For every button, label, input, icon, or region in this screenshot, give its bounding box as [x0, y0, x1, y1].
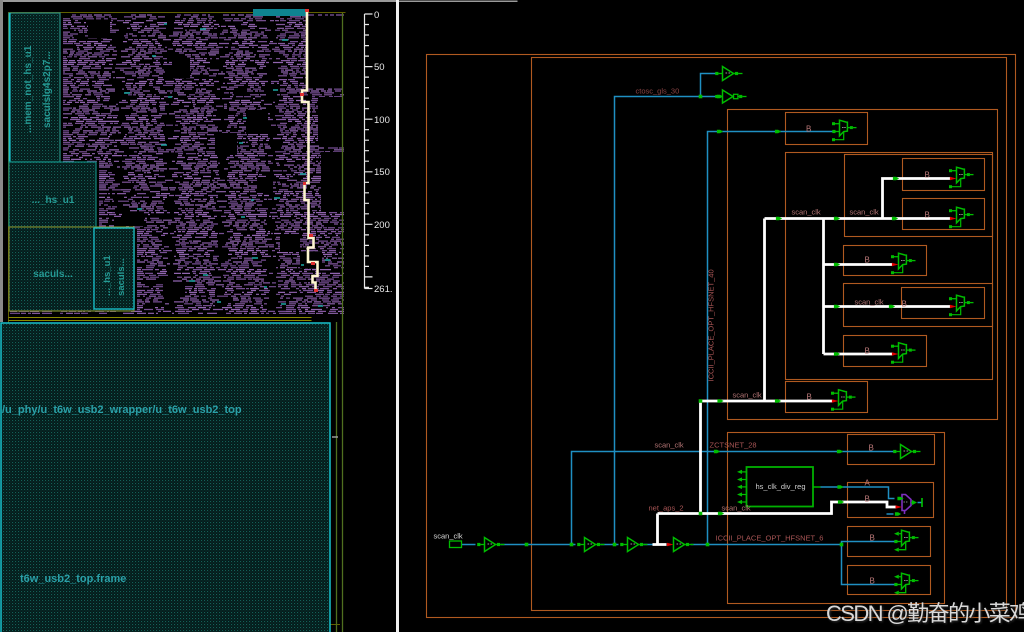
svg-text:..._hs_u1: ..._hs_u1 [32, 195, 75, 206]
svg-text:ICCII_PLACE_OPT_HFSNET_40: ICCII_PLACE_OPT_HFSNET_40 [707, 269, 716, 381]
svg-text:B: B [870, 534, 875, 543]
svg-text:hs_clk_div_reg: hs_clk_div_reg [756, 482, 806, 491]
svg-text:B: B [869, 444, 874, 453]
svg-text:261.: 261. [374, 284, 393, 295]
svg-text:B: B [807, 393, 812, 402]
svg-text:150: 150 [374, 167, 390, 178]
svg-text:scan_clk: scan_clk [850, 208, 879, 217]
svg-text:ICCII_PLACE_OPT_HFSNET_6: ICCII_PLACE_OPT_HFSNET_6 [716, 534, 824, 543]
svg-text:t6w_usb2_top.frame: t6w_usb2_top.frame [20, 573, 126, 585]
svg-text:B: B [865, 347, 870, 356]
svg-text:200: 200 [374, 220, 390, 231]
svg-text:ZCTSNET_28: ZCTSNET_28 [710, 441, 757, 450]
svg-text:scan_clk: scan_clk [434, 532, 463, 541]
svg-text:scan_clk: scan_clk [855, 298, 884, 307]
svg-text:B: B [870, 577, 875, 586]
svg-text:B: B [806, 125, 811, 134]
svg-text:A: A [865, 479, 871, 488]
svg-text:scan_clk: scan_clk [722, 504, 751, 513]
svg-text:saculs...: saculs... [116, 259, 127, 297]
svg-text:scan_clk: scan_clk [655, 441, 684, 450]
svg-text:B: B [865, 495, 870, 504]
svg-text:...mem_not_hs_u1: ...mem_not_hs_u1 [23, 45, 34, 133]
svg-text:B: B [925, 171, 930, 180]
svg-text:B: B [865, 256, 870, 265]
svg-text:scan_clk: scan_clk [792, 208, 821, 217]
svg-text:/u_phy/u_t6w_usb2_wrapper/u_t6: /u_phy/u_t6w_usb2_wrapper/u_t6w_usb2_top [2, 404, 242, 416]
svg-text:saculslg4s2p7...: saculslg4s2p7... [42, 51, 53, 128]
svg-text:100: 100 [374, 115, 390, 126]
svg-text:50: 50 [374, 62, 385, 73]
svg-text:0: 0 [374, 10, 379, 21]
svg-text:saculs...: saculs... [33, 269, 73, 280]
svg-text:ctosc_gls_30: ctosc_gls_30 [636, 87, 680, 96]
svg-text:scan_clk: scan_clk [733, 391, 762, 400]
svg-text:..._hs_u1: ..._hs_u1 [102, 255, 113, 296]
svg-text:B: B [925, 211, 930, 220]
svg-text:B: B [902, 300, 907, 309]
svg-text:net_aps_2: net_aps_2 [649, 504, 684, 513]
